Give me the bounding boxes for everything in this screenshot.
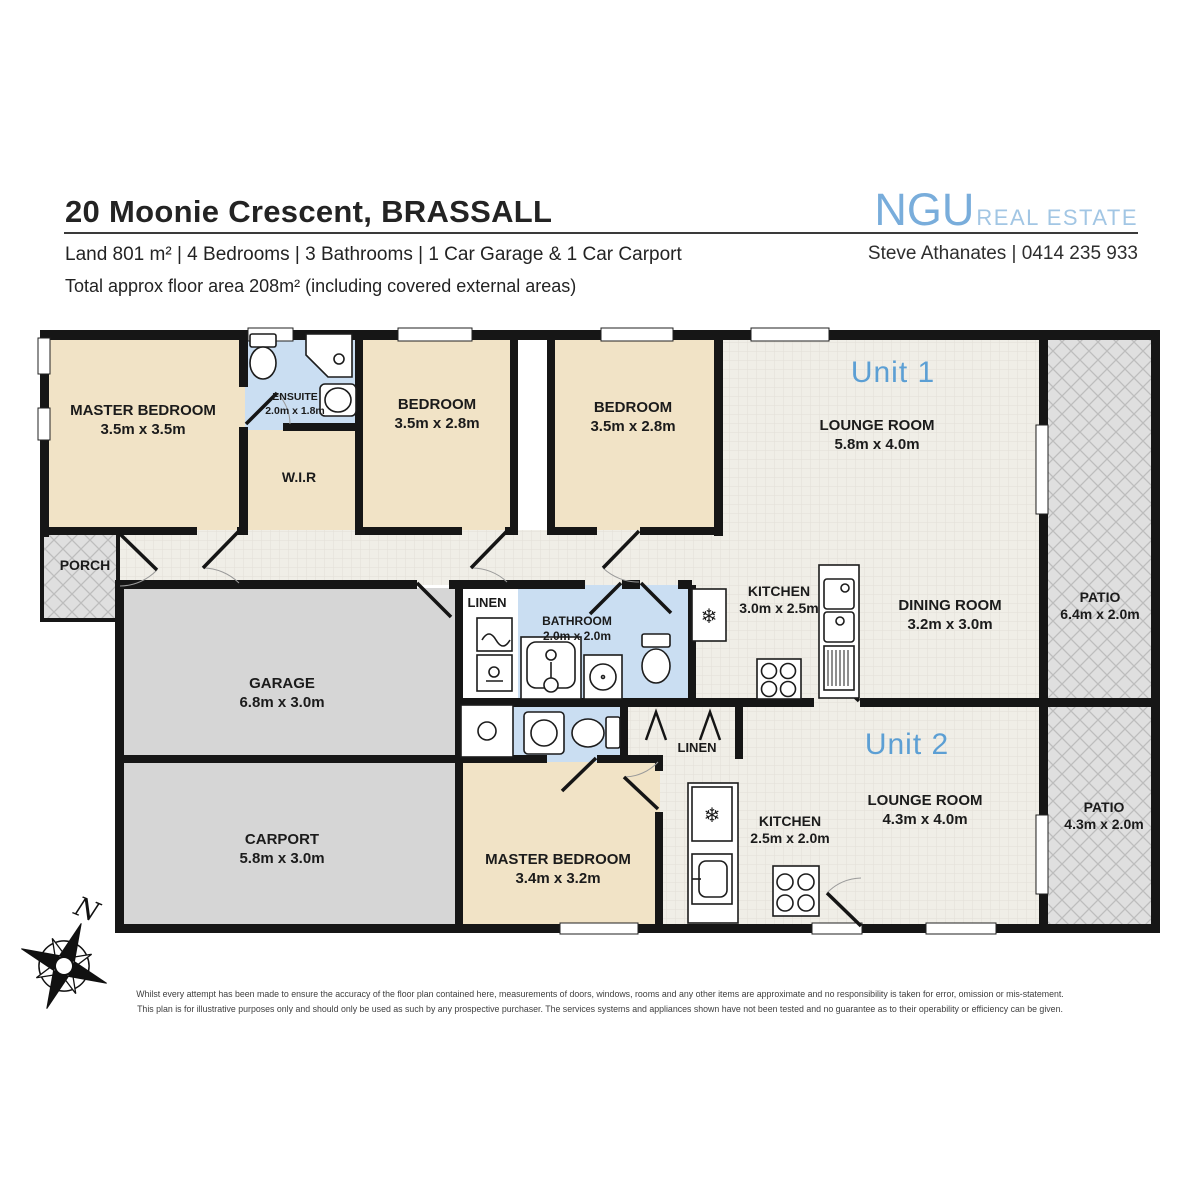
room-label-dining1: DINING ROOM: [898, 597, 1001, 614]
stove-icon: [773, 866, 819, 916]
basin-icon: [524, 712, 564, 754]
robe-gap: [513, 335, 552, 530]
sink-icon: [692, 854, 732, 904]
room-label-linen1: LINEN: [468, 595, 507, 610]
toilet-icon: [572, 717, 620, 748]
room-label-wir: W.I.R: [282, 469, 316, 485]
room-porch: [42, 532, 118, 620]
room-dims-carport: 5.8m x 3.0m: [239, 850, 324, 867]
room-label-bed3: BEDROOM: [594, 399, 672, 416]
room-label-patio1: PATIO: [1080, 589, 1121, 605]
room-label-kitchen1: KITCHEN: [748, 583, 810, 599]
room-dims-bathroom1: 2.0m x 2.0m: [543, 629, 611, 643]
compass-north-label: N: [69, 891, 105, 929]
room-label-carport: CARPORT: [245, 831, 319, 848]
shower-basin-icon: [584, 655, 622, 699]
room-dims-lounge2: 4.3m x 4.0m: [882, 811, 967, 828]
toilet-icon: [250, 334, 276, 379]
room-bed2: [360, 335, 513, 530]
sliding-door-unit2: [1036, 815, 1048, 894]
fridge-snowflake-icon: ❄: [701, 606, 718, 628]
room-dims-kitchen1: 3.0m x 2.5m: [739, 600, 818, 616]
room-label-ensuite: ENSUITE: [272, 391, 318, 403]
room-label-garage: GARAGE: [249, 675, 315, 692]
room-label-bathroom1: BATHROOM: [542, 614, 612, 628]
room-label-lounge2: LOUNGE ROOM: [868, 792, 983, 809]
room-patio1: [1045, 335, 1157, 700]
room-label-lounge1: LOUNGE ROOM: [820, 417, 935, 434]
room-dims-ensuite: 2.0m x 1.8m: [265, 405, 325, 417]
disclaimer-line-1: Whilst every attempt has been made to en…: [0, 987, 1200, 1002]
room-dims-dining1: 3.2m x 3.0m: [907, 616, 992, 633]
floorplan-page: 20 Moonie Crescent, BRASSALL Land 801 m²…: [0, 0, 1200, 1200]
room-dims-kitchen2: 2.5m x 2.0m: [750, 830, 829, 846]
room-label-linen2: LINEN: [678, 740, 717, 755]
room-dims-garage: 6.8m x 3.0m: [239, 694, 324, 711]
room-label-patio2: PATIO: [1084, 799, 1125, 815]
room-dims-patio1: 6.4m x 2.0m: [1060, 606, 1139, 622]
room-label-porch: PORCH: [60, 557, 111, 573]
room-label-bed2: BEDROOM: [398, 396, 476, 413]
laundry-tub-icon: [477, 618, 512, 691]
room-label-master1: MASTER BEDROOM: [70, 402, 216, 419]
room-dims-bed3: 3.5m x 2.8m: [590, 418, 675, 435]
room-label-master2: MASTER BEDROOM: [485, 851, 631, 868]
vanity-icon: [521, 637, 581, 699]
toilet-icon: [642, 634, 670, 683]
room-dims-lounge1: 5.8m x 4.0m: [834, 436, 919, 453]
stove-icon: [757, 659, 801, 699]
room-garage: [120, 588, 460, 758]
room-master2: [460, 762, 660, 925]
basin-icon: [320, 384, 356, 416]
shower-icon: [461, 705, 513, 757]
room-dims-master1: 3.5m x 3.5m: [100, 421, 185, 438]
unit2-label: Unit 2: [865, 728, 949, 761]
room-dims-patio2: 4.3m x 2.0m: [1064, 816, 1143, 832]
disclaimer-line-2: This plan is for illustrative purposes o…: [0, 1002, 1200, 1017]
room-dims-bed2: 3.5m x 2.8m: [394, 415, 479, 432]
sliding-door-unit1: [1036, 425, 1048, 514]
kitchen-bench: [819, 565, 859, 698]
fridge-snowflake-icon: ❄: [704, 805, 721, 827]
room-label-kitchen2: KITCHEN: [759, 813, 821, 829]
room-dims-master2: 3.4m x 3.2m: [515, 870, 600, 887]
floorplan-svg: ❄ ❄ Unit 1 Unit 2 MASTER BEDROOM 3.5m x …: [0, 0, 1200, 1200]
unit1-label: Unit 1: [851, 356, 935, 389]
disclaimer: Whilst every attempt has been made to en…: [0, 987, 1200, 1017]
